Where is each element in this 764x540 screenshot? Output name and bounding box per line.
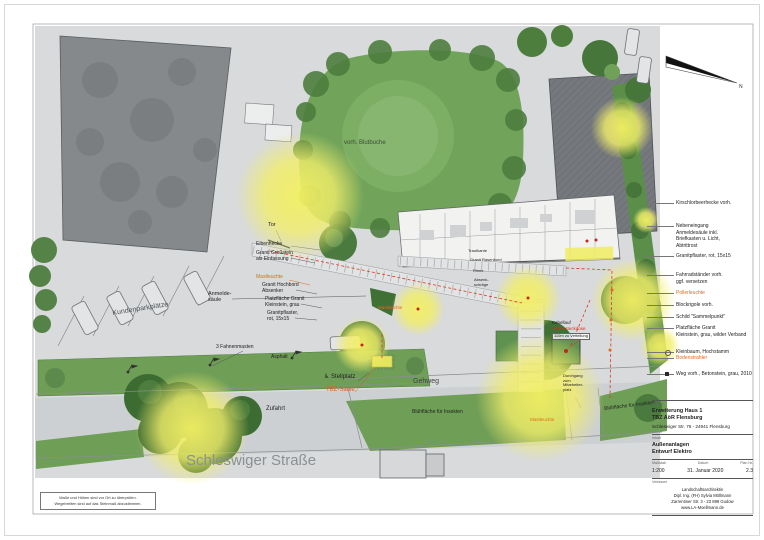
project-address: Schleswiger Str. 76 - 24941 Flensburg [652, 424, 753, 430]
legend-leader-line [647, 293, 674, 294]
plan-label: vorh. Blutbuche [344, 140, 386, 147]
legend-item: Kirschlorbeerhecke vorh. [676, 200, 756, 207]
plan-no-value: 2.3 [746, 468, 753, 474]
plan-label: Granitpflaster, rot, 15x15 [267, 311, 298, 323]
plan-label: Anmelde- säule [208, 291, 232, 304]
titleblock-project-label: Projekt [652, 402, 753, 406]
plan-label: Kabellauf [552, 320, 571, 325]
note-line2: Wegebreiten sind auf das Steinmaß abzust… [42, 501, 154, 507]
date-label: Datum [698, 461, 709, 465]
legend-item: Bodenstrahler [676, 355, 756, 362]
plan-label: TBZ-Säule [326, 387, 355, 394]
plan-label: Granit Rasenbord [470, 258, 502, 263]
plan-no-label: Plan Nr. [740, 461, 753, 465]
plan-label: Gehweg [413, 378, 439, 386]
plan-label: Tor [268, 222, 276, 228]
scale-label: Maßstab [652, 461, 666, 465]
plan-label: 110m zu Verteilung [552, 333, 590, 340]
plan-label: Absenk- schräge [474, 278, 489, 287]
project-title-line2: TBZ AöR Flensburg [652, 415, 753, 422]
plan-label: Platzfläche Granit Kleinstein, grau [265, 297, 304, 309]
author-line4: www.LA-Moellmann.de [652, 505, 753, 511]
legend-item: Blockrigole vorh. [676, 302, 756, 309]
plan-label: ♿ Stellplatz [324, 374, 355, 381]
plan-label: Mastleuchte [530, 417, 554, 422]
date-value: 31. Januar 2020 [687, 468, 723, 474]
plan-label: Granit Hochbord Absenker [262, 283, 299, 295]
plan-label: Zufahrt [266, 406, 285, 413]
plan-label: Mastleuchte [256, 275, 283, 281]
legend-item: Nebeneingang Anmeldesäule inkl. Briefkas… [676, 223, 756, 249]
site-plan-graphics [0, 0, 764, 540]
plan-label: Mastleuchte [378, 305, 402, 310]
paving-symbol-icon [665, 372, 669, 376]
titleblock-content-label: Inhalt [652, 436, 753, 440]
legend-item: Pollerleuchte [676, 290, 756, 297]
legend-item: Weg vorh., Betonstein, grau, 2010 [676, 371, 756, 378]
legend-item: Schild "Sammelpunkt" [676, 314, 756, 321]
legend-leader-line [647, 275, 674, 276]
note-box: Maße und Höhen sind vor Ort zu überprüfe… [40, 492, 156, 510]
plan-label: Asphalt [271, 355, 288, 361]
plan-label: Außensteckdose [552, 326, 586, 331]
legend-leader-line [647, 256, 674, 257]
legend-leader-line [647, 358, 674, 359]
content-line1: Außenanlagen [652, 442, 753, 449]
plan-label: Rinne [473, 269, 483, 274]
north-arrow-label: N [739, 84, 743, 90]
project-title-line1: Erweiterung Haus 1 [652, 408, 753, 415]
legend-leader-line [647, 305, 674, 306]
plan-label: Granit Großstein als Einfassung [256, 251, 293, 263]
plan-label: 3 Fahnenmasten [216, 345, 254, 351]
legend-leader-line [647, 374, 674, 375]
legend-item: Granitpflaster, rot, 15x15 [676, 253, 756, 260]
legend-leader-line [647, 226, 674, 227]
title-block: Projekt Erweiterung Haus 1 TBZ AöR Flens… [652, 400, 753, 516]
tree-symbol-icon [665, 350, 671, 356]
scale-value: 1:200 [652, 468, 665, 474]
plan-label: Schleswiger Straße [186, 452, 316, 470]
legend-leader-line [647, 203, 674, 204]
plan-label: Durchgang zum Mitarbeiter- platz [563, 374, 583, 393]
author-label: Verfasser [652, 480, 753, 484]
legend-item: Fahrradständer vorh. ggf. versetzen [676, 272, 756, 285]
plan-label: Blühfläche für Insekten [412, 410, 463, 416]
legend-leader-line [647, 317, 674, 318]
legend-leader-line [647, 328, 674, 329]
plan-label: Traufkante [468, 249, 487, 254]
north-arrow-icon [666, 56, 737, 83]
legend-item: Platzfläche Granit Kleinstein, grau, wil… [676, 325, 756, 338]
truck-icon [380, 450, 444, 478]
sheet: TorAnmelde- säuleEibenheckeGranit Großst… [0, 0, 764, 540]
content-line2: Entwurf Elektro [652, 449, 753, 456]
plan-label: Eibenhecke [256, 242, 282, 248]
